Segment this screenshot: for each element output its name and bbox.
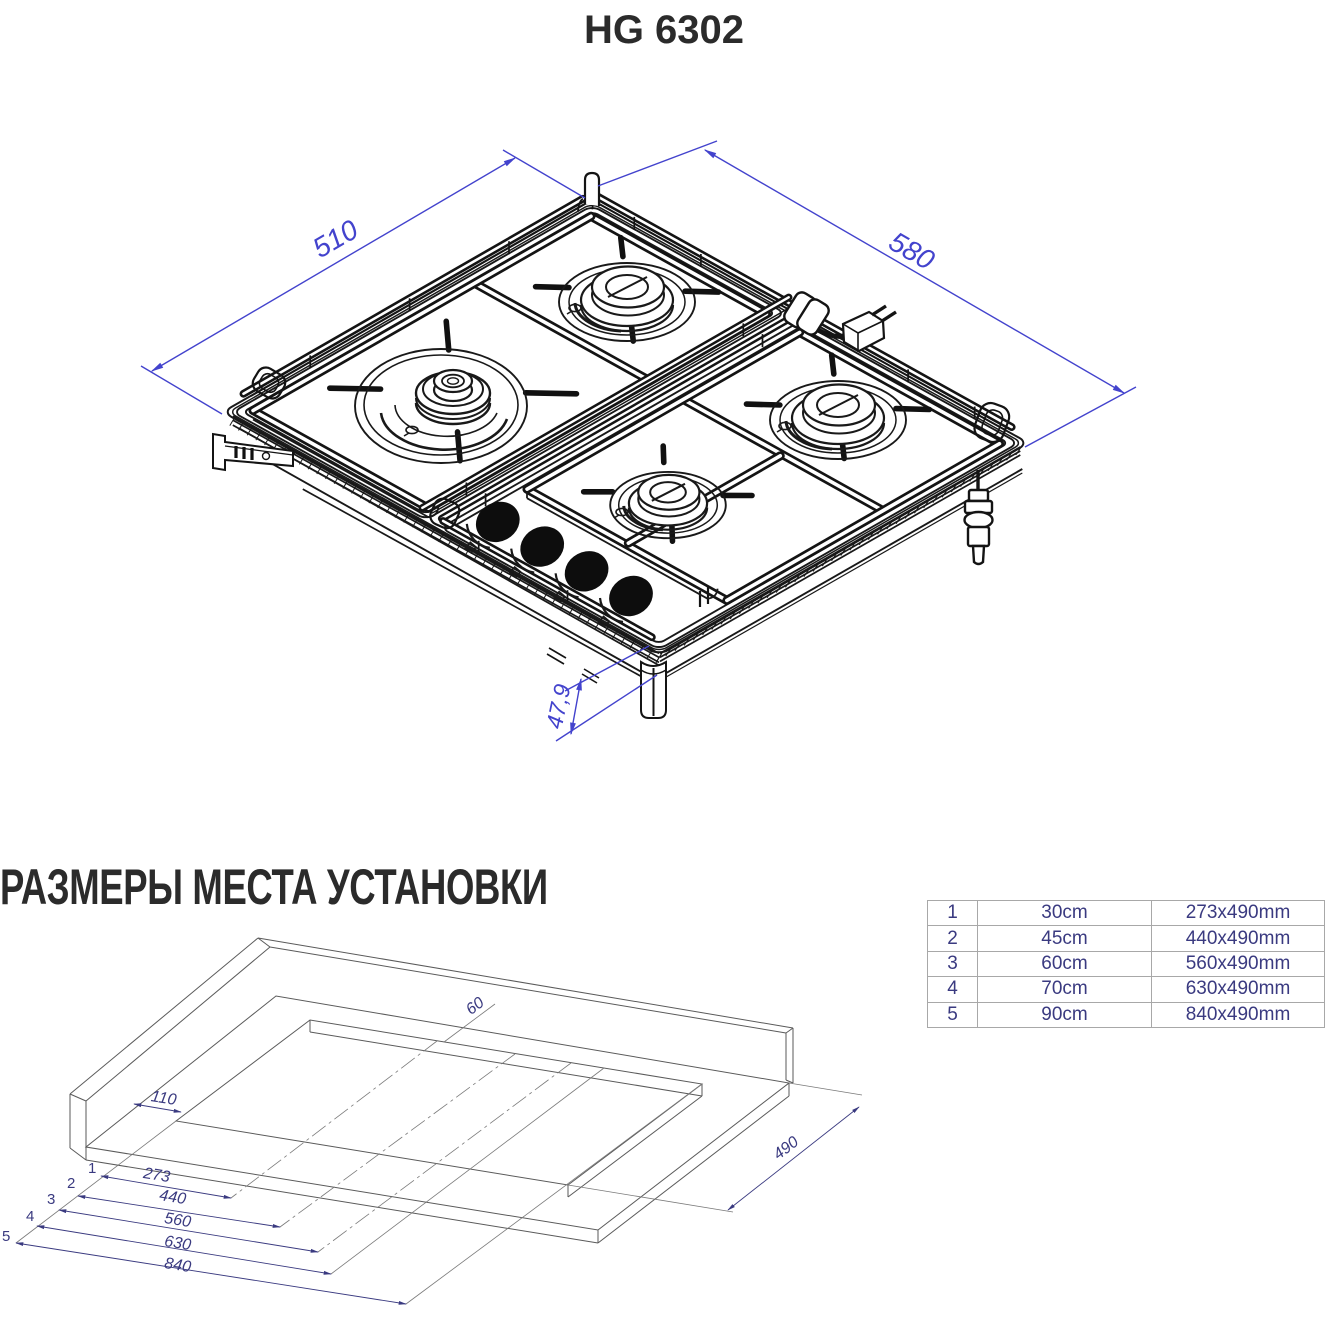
- svg-text:580: 580: [884, 226, 940, 276]
- svg-text:840: 840: [163, 1255, 192, 1276]
- svg-text:510: 510: [307, 213, 363, 264]
- svg-text:110: 110: [150, 1088, 178, 1109]
- svg-text:273: 273: [141, 1165, 171, 1186]
- svg-text:630: 630: [163, 1233, 192, 1254]
- svg-text:2: 2: [67, 1175, 75, 1192]
- svg-text:3: 3: [47, 1191, 55, 1208]
- svg-text:5: 5: [2, 1228, 10, 1245]
- svg-text:4: 4: [26, 1208, 34, 1225]
- svg-text:1: 1: [88, 1160, 96, 1177]
- svg-text:47,9: 47,9: [541, 682, 576, 731]
- svg-text:440: 440: [158, 1187, 187, 1208]
- svg-text:60: 60: [463, 994, 488, 1018]
- svg-text:490: 490: [770, 1134, 802, 1164]
